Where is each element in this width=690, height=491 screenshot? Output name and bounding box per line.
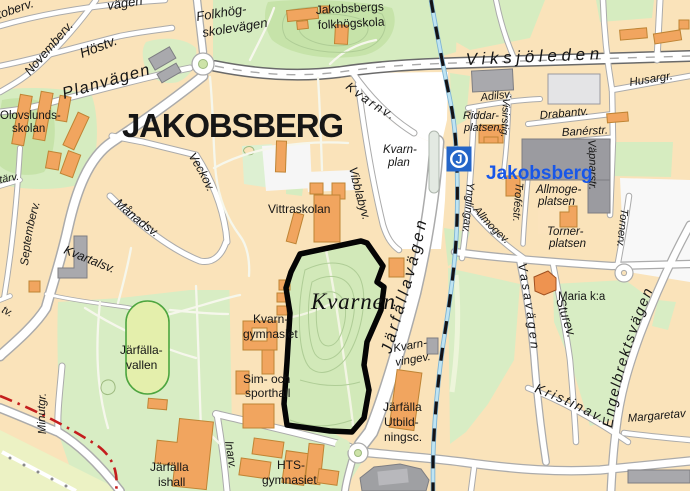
svg-text:platsen: platsen xyxy=(463,122,499,134)
svg-text:HTS-: HTS- xyxy=(277,458,305,472)
svg-text:Riddar-: Riddar- xyxy=(463,110,499,122)
svg-text:Banérstr.: Banérstr. xyxy=(562,125,609,139)
svg-text:Visirstig.: Visirstig. xyxy=(498,98,512,138)
svg-text:ningsc.: ningsc. xyxy=(384,430,422,444)
svg-text:platsen: platsen xyxy=(537,196,575,208)
svg-text:platsen: platsen xyxy=(548,238,586,250)
svg-text:JAKOBSBERG: JAKOBSBERG xyxy=(122,107,343,144)
svg-text:Olovslunds-: Olovslunds- xyxy=(0,110,61,122)
svg-text:Torner-: Torner- xyxy=(547,226,584,238)
svg-text:Järfälla-: Järfälla- xyxy=(120,343,163,357)
svg-text:ishall: ishall xyxy=(158,475,185,489)
svg-text:Allmoge-: Allmoge- xyxy=(535,184,582,196)
svg-text:plan: plan xyxy=(387,157,410,169)
svg-text:Jakobsberg: Jakobsberg xyxy=(486,163,593,184)
svg-text:Kvarnen: Kvarnen xyxy=(310,289,396,314)
svg-text:gymnasiet: gymnasiet xyxy=(262,473,317,487)
svg-text:Minutgr.: Minutgr. xyxy=(36,392,49,435)
svg-text:Kvarn-: Kvarn- xyxy=(253,312,288,326)
svg-text:J: J xyxy=(456,153,463,167)
svg-text:sporthall: sporthall xyxy=(245,386,290,400)
svg-text:Kvarn-: Kvarn- xyxy=(383,144,417,156)
svg-text:skolan: skolan xyxy=(12,123,45,135)
svg-text:Vittraskolan: Vittraskolan xyxy=(268,202,330,216)
svg-text:Utbild-: Utbild- xyxy=(384,415,419,429)
svg-text:gymnasiet: gymnasiet xyxy=(243,327,298,341)
svg-text:Järfälla: Järfälla xyxy=(383,400,422,414)
svg-text:Sim- och: Sim- och xyxy=(243,372,290,386)
svg-text:vallen: vallen xyxy=(126,358,157,372)
svg-text:Järfälla: Järfälla xyxy=(150,460,189,474)
